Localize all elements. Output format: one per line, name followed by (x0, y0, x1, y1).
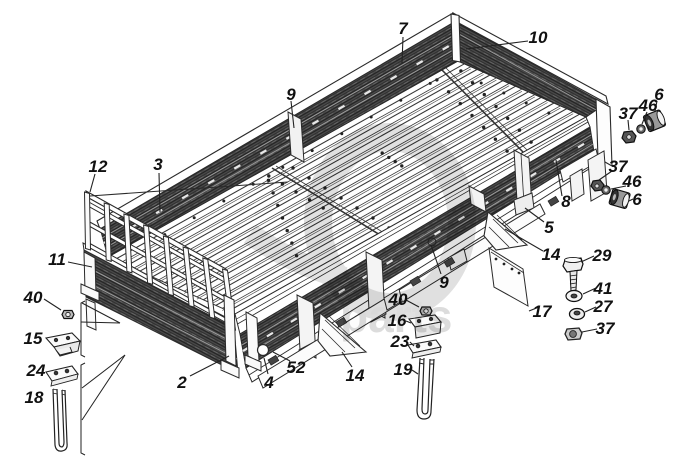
svg-text:8: 8 (561, 192, 571, 211)
svg-text:41: 41 (593, 279, 613, 298)
svg-text:15: 15 (24, 329, 43, 348)
svg-text:19: 19 (394, 360, 413, 379)
svg-text:29: 29 (592, 246, 612, 265)
svg-text:40: 40 (23, 288, 43, 307)
svg-text:46: 46 (622, 172, 642, 191)
svg-text:6: 6 (654, 85, 664, 104)
svg-text:11: 11 (48, 250, 66, 269)
svg-text:5: 5 (544, 218, 554, 237)
svg-text:7: 7 (398, 19, 409, 38)
svg-text:6: 6 (632, 190, 642, 209)
svg-text:18: 18 (25, 388, 44, 407)
svg-text:9: 9 (286, 85, 296, 104)
svg-text:27: 27 (593, 297, 614, 316)
svg-text:37: 37 (596, 319, 616, 338)
svg-text:3: 3 (153, 155, 163, 174)
svg-text:17: 17 (533, 302, 553, 321)
svg-text:4: 4 (263, 373, 274, 392)
svg-text:2: 2 (176, 373, 187, 392)
svg-text:37: 37 (619, 104, 639, 123)
svg-text:52: 52 (287, 358, 306, 377)
svg-text:parts: parts (340, 290, 452, 342)
svg-text:10: 10 (529, 28, 548, 47)
svg-text:12: 12 (89, 157, 108, 176)
svg-text:14: 14 (346, 366, 365, 385)
svg-text:24: 24 (26, 361, 46, 380)
svg-text:14: 14 (542, 245, 561, 264)
